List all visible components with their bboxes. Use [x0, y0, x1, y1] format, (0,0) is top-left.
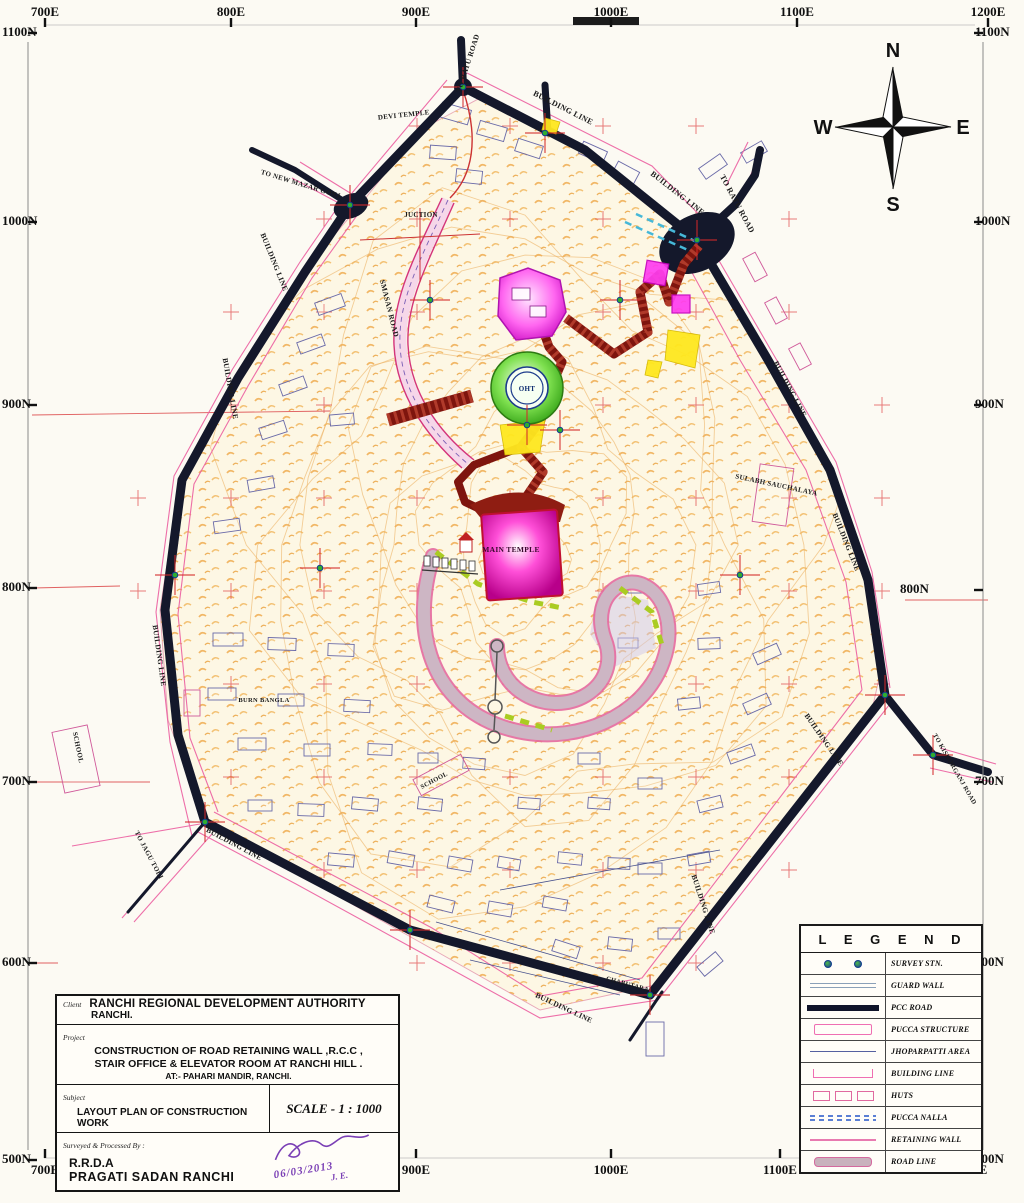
compass-w: W	[814, 117, 833, 139]
hut-rect	[557, 852, 582, 865]
building-line-symbol	[801, 1063, 886, 1084]
title-block-subject: Subject LAYOUT PLAN OF CONSTRUCTION WORK…	[57, 1085, 398, 1133]
coordinate-label: 1100N	[975, 24, 1010, 40]
coordinate-label: 1100N	[2, 24, 37, 40]
tick	[44, 1149, 46, 1158]
title-block-client: Client RANCHI REGIONAL DEVELOPMENT AUTHO…	[57, 996, 398, 1025]
title-block-project: Project CONSTRUCTION OF ROAD RETAINING W…	[57, 1025, 398, 1085]
legend-row: HUTS	[801, 1085, 981, 1107]
hut-rect	[607, 937, 632, 951]
compass-rose: N E S W	[814, 40, 970, 216]
survey-station-dot	[882, 692, 888, 698]
legend: L E G E N D SURVEY STN.GUARD WALLPCC ROA…	[799, 924, 983, 1174]
hut-rect	[344, 699, 371, 712]
hut-rect	[304, 744, 330, 756]
map-label: TO JAGU TOLI	[133, 830, 165, 881]
coordinate-label: 1100E	[763, 1162, 797, 1178]
grid-cross	[409, 955, 425, 971]
legend-title: L E G E N D	[801, 926, 981, 953]
map-label: MAIN TEMPLE	[482, 545, 540, 554]
legend-row: SURVEY STN.	[801, 953, 981, 975]
coordinate-label: 600N	[2, 954, 31, 970]
tick	[974, 589, 983, 591]
coordinate-label: 900E	[402, 1162, 430, 1178]
jhoparpatti-area-symbol	[801, 1041, 886, 1062]
survey-station-dot	[427, 297, 433, 303]
legend-row: JHOPARPATTI AREA	[801, 1041, 981, 1063]
legend-label: HUTS	[886, 1091, 981, 1100]
survey-station-dot	[172, 572, 178, 578]
coordinate-label: 500N	[2, 1151, 31, 1167]
grid-cross	[874, 583, 890, 599]
hut-rect	[588, 797, 611, 810]
hut-rect	[213, 633, 243, 646]
coordinate-label: 1200E	[971, 4, 1006, 20]
hut-rect	[697, 952, 723, 977]
hut-rect	[430, 145, 457, 160]
title-block: Client RANCHI REGIONAL DEVELOPMENT AUTHO…	[55, 994, 400, 1192]
hut-rect	[268, 638, 296, 651]
compass-n: N	[886, 40, 900, 62]
coordinate-label: 700E	[31, 4, 59, 20]
legend-row: ROAD LINE	[801, 1151, 981, 1172]
subject-text: LAYOUT PLAN OF CONSTRUCTION WORK	[77, 1107, 265, 1129]
legend-row: PUCCA STRUCTURE	[801, 1019, 981, 1041]
legend-rows: SURVEY STN.GUARD WALLPCC ROADPUCCA STRUC…	[801, 953, 981, 1172]
grid-cross	[595, 118, 611, 134]
legend-label: RETAINING WALL	[886, 1135, 981, 1144]
survey-stn-symbol	[801, 953, 886, 974]
grid-cross	[130, 490, 146, 506]
map-label: OHT	[519, 385, 535, 393]
survey-station-dot	[737, 572, 743, 578]
tick	[415, 1149, 417, 1158]
hut-rect	[248, 800, 272, 811]
hut-rect	[698, 638, 720, 650]
subject-label: Subject	[63, 1093, 85, 1102]
pucca-structure-rect	[743, 252, 768, 282]
grid-cross	[688, 118, 704, 134]
hut-rect	[238, 738, 266, 750]
project-line1: CONSTRUCTION OF ROAD RETAINING WALL ,R.C…	[63, 1045, 394, 1058]
map-label: BUILDING LINE	[259, 232, 291, 293]
title-block-surveyed: Surveyed & Processed By : R.R.D.A PRAGAT…	[57, 1133, 398, 1190]
hut-rect	[330, 413, 355, 426]
grid-cross	[874, 490, 890, 506]
coordinate-label: 1000E	[594, 1162, 629, 1178]
coordinate-label: 700N	[2, 773, 31, 789]
survey-station-dot	[647, 992, 653, 998]
map-label: DEVI TEMPLE	[378, 108, 431, 121]
project-line2: STAIR OFFICE & ELEVATOR ROOM AT RANCHI H…	[63, 1058, 394, 1071]
grid-cross	[781, 211, 797, 227]
road-line-symbol	[801, 1151, 886, 1172]
guard-wall-symbol	[801, 975, 886, 996]
pucca-structure-symbol	[801, 1019, 886, 1040]
legend-label: PUCCA NALLA	[886, 1113, 981, 1122]
survey-station-dot	[407, 927, 413, 933]
retaining-wall-symbol	[801, 1129, 886, 1150]
hut-rect	[208, 688, 236, 700]
hut-rect	[368, 744, 392, 756]
coordinate-label: 900N	[2, 396, 31, 412]
coordinate-label: 1000N	[975, 213, 1010, 229]
legend-label: GUARD WALL	[886, 981, 981, 990]
legend-row: GUARD WALL	[801, 975, 981, 997]
client-city: RANCHI.	[91, 1010, 394, 1021]
survey-station-dot	[930, 752, 936, 758]
hut-rect	[417, 797, 442, 811]
hut-rect	[677, 697, 700, 710]
hut-rect	[418, 753, 438, 763]
coordinate-label: 1000N	[2, 213, 37, 229]
tick	[610, 1149, 612, 1158]
hut-rect	[608, 858, 630, 870]
survey-station-dot	[524, 422, 530, 428]
map-label: BURN BANGLA	[238, 697, 289, 704]
legend-label: PUCCA STRUCTURE	[886, 1025, 981, 1034]
grid-cross	[781, 862, 797, 878]
survey-station-dot	[694, 237, 700, 243]
legend-label: PCC ROAD	[886, 1003, 981, 1012]
coordinate-label: 1000E	[594, 4, 629, 20]
client-label: Client	[63, 1000, 81, 1009]
legend-label: SURVEY STN.	[886, 959, 981, 968]
pucca-nalla-symbol	[801, 1107, 886, 1128]
grid-cross	[223, 304, 239, 320]
legend-label: ROAD LINE	[886, 1157, 981, 1166]
hut-rect	[328, 644, 354, 657]
pcc-road-symbol	[801, 997, 886, 1018]
survey-station-dot	[317, 565, 323, 571]
hut-rect	[646, 1022, 664, 1056]
survey-station-dot	[542, 130, 548, 136]
survey-station-dot	[202, 819, 208, 825]
legend-row: PUCCA NALLA	[801, 1107, 981, 1129]
legend-row: RETAINING WALL	[801, 1129, 981, 1151]
scale-text: SCALE - 1 : 1000	[269, 1085, 398, 1132]
map-label: JUCTION	[404, 211, 438, 219]
client-name: RANCHI REGIONAL DEVELOPMENT AUTHORITY	[89, 998, 365, 1010]
legend-label: JHOPARPATTI AREA	[886, 1047, 981, 1056]
project-label: Project	[63, 1033, 85, 1042]
hut-rect	[518, 797, 541, 810]
hut-rect	[638, 778, 662, 789]
hut-rect	[658, 928, 680, 939]
pucca-structure-rect	[789, 343, 812, 370]
survey-station-dot	[347, 202, 353, 208]
hut-rect	[455, 169, 482, 185]
coordinate-label: 1100E	[780, 4, 814, 20]
surveyed-label: Surveyed & Processed By :	[63, 1141, 145, 1150]
grid-cross	[130, 583, 146, 599]
project-line3: AT:- PAHARI MANDIR, RANCHI.	[63, 1071, 394, 1081]
legend-row: BUILDING LINE	[801, 1063, 981, 1085]
coordinate-label: 800N	[900, 581, 929, 597]
hut-rect	[298, 804, 324, 817]
hut-rect	[328, 853, 355, 867]
compass-e: E	[956, 117, 969, 139]
legend-row: PCC ROAD	[801, 997, 981, 1019]
tick	[779, 1149, 781, 1158]
coordinate-label: 900N	[975, 396, 1004, 412]
coordinate-label: 900E	[402, 4, 430, 20]
hut-rect	[578, 753, 600, 764]
pucca-structure-rect	[765, 297, 788, 324]
hut-rect	[352, 797, 379, 811]
coordinate-label: 700N	[975, 773, 1004, 789]
survey-station-dot	[617, 297, 623, 303]
drawing-sheet: TO RATU ROADBUILDING LINEDEVI TEMPLETO N…	[0, 0, 1024, 1203]
coordinate-label: 800E	[217, 4, 245, 20]
survey-station-dot	[557, 427, 563, 433]
legend-label: BUILDING LINE	[886, 1069, 981, 1078]
huts-symbol	[801, 1085, 886, 1106]
grid-cross	[874, 397, 890, 413]
coordinate-label: 800N	[2, 579, 31, 595]
compass-s: S	[886, 194, 899, 216]
